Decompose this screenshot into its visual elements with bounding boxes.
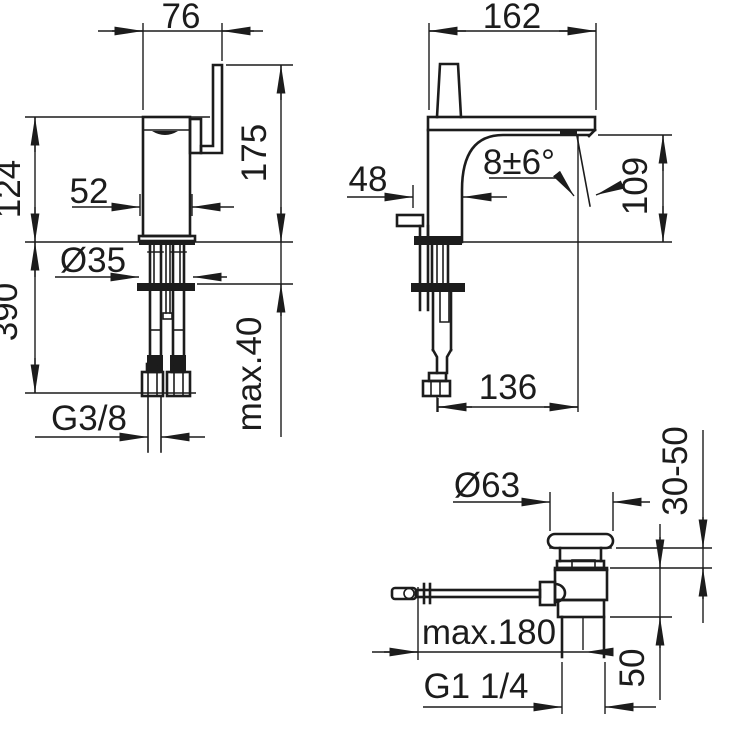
dim-label-dia63: Ø63 xyxy=(454,466,520,505)
front-hose xyxy=(433,350,451,373)
dim-label-390: 390 xyxy=(0,283,25,341)
dim-label-dia35: Ø35 xyxy=(60,241,126,280)
dim-label-g38: G3/8 xyxy=(51,399,127,438)
dim-label-50: 50 xyxy=(613,649,652,688)
technical-drawing: 76 124 390 175 max.40 52 Ø35 xyxy=(0,0,744,735)
drain-body xyxy=(555,568,607,600)
dim-label-48: 48 xyxy=(349,160,388,199)
front-view-dimensions: 162 48 8±6° 109 136 xyxy=(347,0,672,412)
dim-label-109: 109 xyxy=(616,157,655,215)
popup-knob xyxy=(397,215,423,226)
pull-rod-eye xyxy=(404,589,414,599)
front-view-faucet xyxy=(397,64,672,412)
dim-label-76: 76 xyxy=(162,0,201,36)
front-flange xyxy=(411,283,465,292)
water-stream-line xyxy=(577,136,590,206)
dim-label-angle: 8±6° xyxy=(483,143,555,182)
pull-rod xyxy=(416,590,540,597)
dim-label-max40: max.40 xyxy=(230,317,269,432)
drain-body-lower xyxy=(558,600,604,617)
spout-top-plate xyxy=(428,117,595,130)
front-base-plate xyxy=(414,236,462,245)
dim-label-max180: max.180 xyxy=(422,613,556,652)
side-lever-hub xyxy=(190,119,201,153)
dim-label-162: 162 xyxy=(483,0,541,36)
drain-dimensions: Ø63 30-50 50 max.180 G1 1/4 xyxy=(372,426,712,714)
side-view-faucet-body xyxy=(139,65,222,245)
dim-label-52: 52 xyxy=(70,172,109,211)
front-popup-rod xyxy=(440,292,449,322)
aerator-outlet xyxy=(560,130,577,136)
side-lever-handle xyxy=(201,65,222,153)
dim-label-124: 124 xyxy=(0,160,28,218)
joystick-handle xyxy=(437,64,461,117)
dim-label-30-50: 30-50 xyxy=(656,426,695,516)
dim-label-175: 175 xyxy=(235,124,274,182)
technical-drawing-sheet: 76 124 390 175 max.40 52 Ø35 xyxy=(0,0,744,735)
rod-joint-block xyxy=(540,582,555,605)
front-hose-nut xyxy=(423,381,450,396)
dim-label-136: 136 xyxy=(479,368,537,407)
dim-label-g114: G1 1/4 xyxy=(423,667,528,706)
side-view-supply-hoses xyxy=(137,245,195,452)
cartridge-cap-arc xyxy=(152,131,178,135)
escutcheon-flange xyxy=(137,283,195,291)
drain-plug-dome xyxy=(548,534,613,548)
